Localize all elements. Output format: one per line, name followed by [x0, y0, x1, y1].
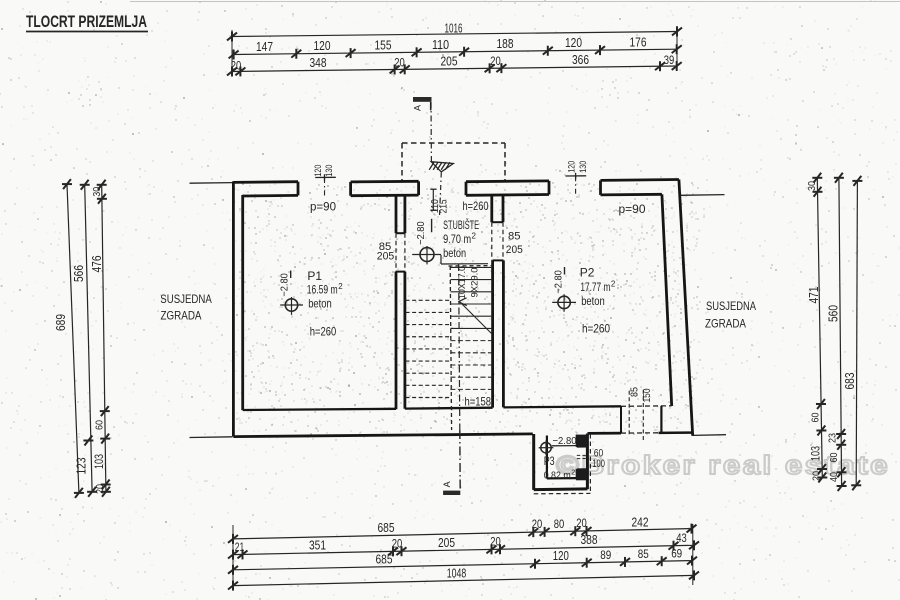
- svg-text:103: 103: [92, 454, 106, 469]
- svg-text:89: 89: [600, 548, 611, 562]
- svg-text:40: 40: [828, 472, 840, 482]
- svg-text:351: 351: [309, 538, 326, 552]
- svg-text:242: 242: [632, 515, 649, 529]
- svg-text:110: 110: [432, 38, 449, 52]
- svg-text:P2: P2: [580, 266, 595, 280]
- svg-text:188: 188: [497, 37, 514, 51]
- svg-text:h=260: h=260: [463, 199, 489, 213]
- svg-text:0.82 m: 0.82 m: [544, 469, 571, 481]
- svg-text:130: 130: [324, 165, 335, 177]
- svg-text:−2.80: −2.80: [552, 270, 564, 294]
- svg-text:SUSJEDNA: SUSJEDNA: [160, 292, 212, 306]
- svg-text:9X29.0: 9X29.0: [469, 268, 480, 298]
- svg-text:−2.80: −2.80: [278, 273, 290, 297]
- svg-text:85: 85: [638, 547, 649, 561]
- svg-text:A: A: [442, 481, 452, 487]
- svg-text:20: 20: [576, 516, 587, 530]
- svg-text:p=90: p=90: [310, 202, 336, 214]
- svg-text:69: 69: [671, 547, 682, 561]
- svg-text:A: A: [412, 105, 422, 111]
- svg-text:476: 476: [90, 255, 104, 272]
- svg-text:120: 120: [314, 39, 331, 53]
- svg-text:20: 20: [490, 54, 501, 68]
- svg-text:120: 120: [567, 161, 578, 173]
- svg-text:60: 60: [828, 452, 840, 462]
- svg-text:30: 30: [91, 187, 103, 197]
- svg-text:120: 120: [565, 36, 582, 50]
- svg-text:2: 2: [338, 282, 343, 291]
- svg-text:120: 120: [313, 165, 324, 177]
- svg-text:2: 2: [472, 232, 477, 241]
- svg-text:103: 103: [809, 446, 823, 461]
- svg-text:beton: beton: [308, 297, 332, 311]
- svg-text:155: 155: [375, 39, 392, 53]
- svg-text:ZGRADA: ZGRADA: [705, 316, 747, 330]
- svg-text:348: 348: [310, 56, 327, 70]
- svg-text:h=260: h=260: [310, 325, 337, 339]
- svg-text:20: 20: [810, 471, 822, 481]
- svg-text:85: 85: [508, 231, 521, 243]
- svg-text:123: 123: [75, 457, 89, 474]
- svg-text:17.77 m: 17.77 m: [580, 280, 610, 294]
- svg-text:205: 205: [506, 244, 523, 256]
- svg-text:20: 20: [532, 517, 543, 531]
- svg-text:23: 23: [827, 433, 839, 443]
- svg-text:205: 205: [377, 251, 395, 263]
- svg-text:215: 215: [439, 199, 450, 213]
- svg-text:20: 20: [392, 536, 403, 550]
- svg-text:h=158: h=158: [465, 394, 492, 408]
- svg-text:20: 20: [490, 534, 501, 548]
- svg-text:−2.80: −2.80: [415, 221, 427, 245]
- svg-text:205: 205: [438, 536, 455, 550]
- svg-text:685: 685: [376, 552, 393, 566]
- svg-text:176: 176: [630, 35, 647, 49]
- svg-text:43: 43: [676, 531, 687, 545]
- svg-text:85: 85: [630, 387, 641, 397]
- svg-text:STUBIŠTE: STUBIŠTE: [443, 217, 479, 232]
- svg-text:P3: P3: [544, 456, 555, 468]
- svg-text:2: 2: [571, 470, 575, 477]
- svg-text:60: 60: [93, 420, 105, 430]
- svg-text:130: 130: [578, 161, 589, 173]
- svg-text:16.59 m: 16.59 m: [307, 283, 338, 297]
- svg-text:150: 150: [642, 388, 653, 402]
- svg-text:SUSJEDNA: SUSJEDNA: [706, 299, 757, 313]
- svg-text:683: 683: [843, 372, 857, 389]
- svg-text:80: 80: [554, 517, 565, 531]
- svg-text:205: 205: [441, 55, 458, 69]
- svg-text:20: 20: [394, 56, 405, 70]
- svg-text:366: 366: [572, 53, 589, 67]
- svg-text:9.70 m: 9.70 m: [443, 232, 471, 246]
- svg-text:388: 388: [581, 533, 598, 547]
- svg-text:1016: 1016: [445, 21, 463, 35]
- svg-text:P1: P1: [307, 269, 322, 283]
- svg-text:560: 560: [826, 305, 840, 322]
- svg-text:21: 21: [235, 542, 245, 554]
- svg-text:p=90: p=90: [619, 204, 646, 216]
- svg-text:147: 147: [256, 40, 273, 54]
- svg-text:1048: 1048: [447, 566, 467, 580]
- svg-text:h=260: h=260: [582, 321, 610, 335]
- svg-text:60: 60: [810, 412, 822, 422]
- svg-text:566: 566: [72, 265, 86, 282]
- svg-text:689: 689: [54, 314, 68, 331]
- svg-text:2: 2: [611, 280, 616, 289]
- svg-text:685: 685: [378, 521, 395, 535]
- svg-text:beton: beton: [581, 294, 605, 308]
- svg-text:120: 120: [553, 549, 569, 563]
- svg-text:TLOCRT PRIZEMLJA: TLOCRT PRIZEMLJA: [26, 13, 147, 31]
- svg-text:471: 471: [807, 286, 821, 303]
- svg-text:ZGRADA: ZGRADA: [161, 309, 203, 323]
- svg-text:beton: beton: [443, 246, 466, 260]
- svg-text:20: 20: [94, 484, 106, 494]
- svg-text:30: 30: [806, 181, 818, 191]
- svg-text:39: 39: [664, 53, 675, 67]
- svg-text:100: 100: [592, 458, 605, 470]
